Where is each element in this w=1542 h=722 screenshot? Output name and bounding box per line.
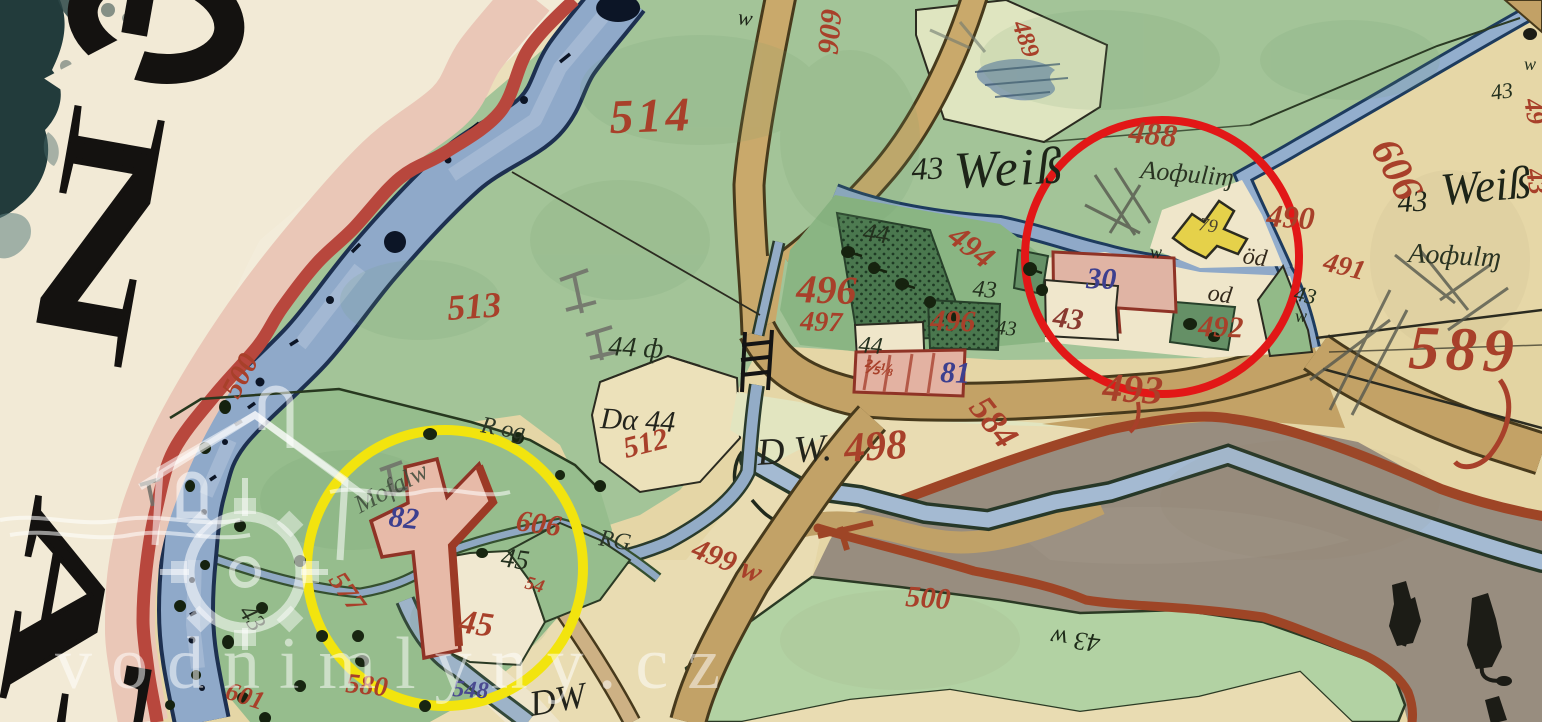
svg-text:w: w: [1295, 306, 1307, 326]
svg-text:82: 82: [387, 500, 420, 536]
svg-text:497: 497: [799, 306, 844, 339]
svg-text:44 ф: 44 ф: [608, 331, 665, 365]
svg-text:43: 43: [995, 315, 1018, 341]
svg-text:od: od: [1206, 280, 1234, 309]
svg-text:Аoфulɱ: Аoфulɱ: [1406, 238, 1502, 274]
svg-text:498: 498: [841, 422, 908, 472]
svg-text:513: 513: [446, 284, 503, 328]
svg-text:öd: öd: [1241, 243, 1269, 272]
svg-text:490: 490: [1265, 197, 1316, 236]
svg-text:43: 43: [910, 149, 944, 187]
svg-text:79: 79: [1197, 214, 1219, 238]
svg-text:w: w: [1150, 242, 1162, 262]
svg-text:⅖⅛: ⅖⅛: [861, 356, 894, 380]
svg-text:Weiß: Weiß: [953, 137, 1066, 200]
svg-text:44: 44: [857, 332, 883, 360]
svg-text:606: 606: [514, 504, 563, 543]
svg-text:493: 493: [1100, 364, 1164, 413]
svg-text:81: 81: [940, 356, 971, 390]
svg-text:D W.: D W.: [755, 427, 833, 474]
svg-text:45: 45: [499, 542, 531, 577]
svg-text:492: 492: [1197, 310, 1244, 345]
svg-text:44: 44: [861, 217, 891, 249]
svg-text:w: w: [1524, 54, 1536, 74]
svg-text:30: 30: [1085, 262, 1117, 296]
svg-text:43: 43: [1489, 77, 1514, 105]
svg-text:43: 43: [1050, 300, 1085, 337]
svg-text:589: 589: [1408, 314, 1521, 386]
svg-text:Weiß: Weiß: [1438, 156, 1532, 215]
svg-text:496: 496: [929, 304, 976, 339]
svg-text:43: 43: [971, 276, 997, 304]
svg-text:43 w: 43 w: [1048, 623, 1102, 658]
svg-text:500: 500: [905, 580, 952, 616]
svg-text:488: 488: [1126, 113, 1178, 154]
svg-text:606: 606: [811, 7, 848, 55]
svg-text:514: 514: [609, 88, 695, 144]
svg-text:vodnimlyny.cz: vodnimlyny.cz: [55, 623, 739, 705]
